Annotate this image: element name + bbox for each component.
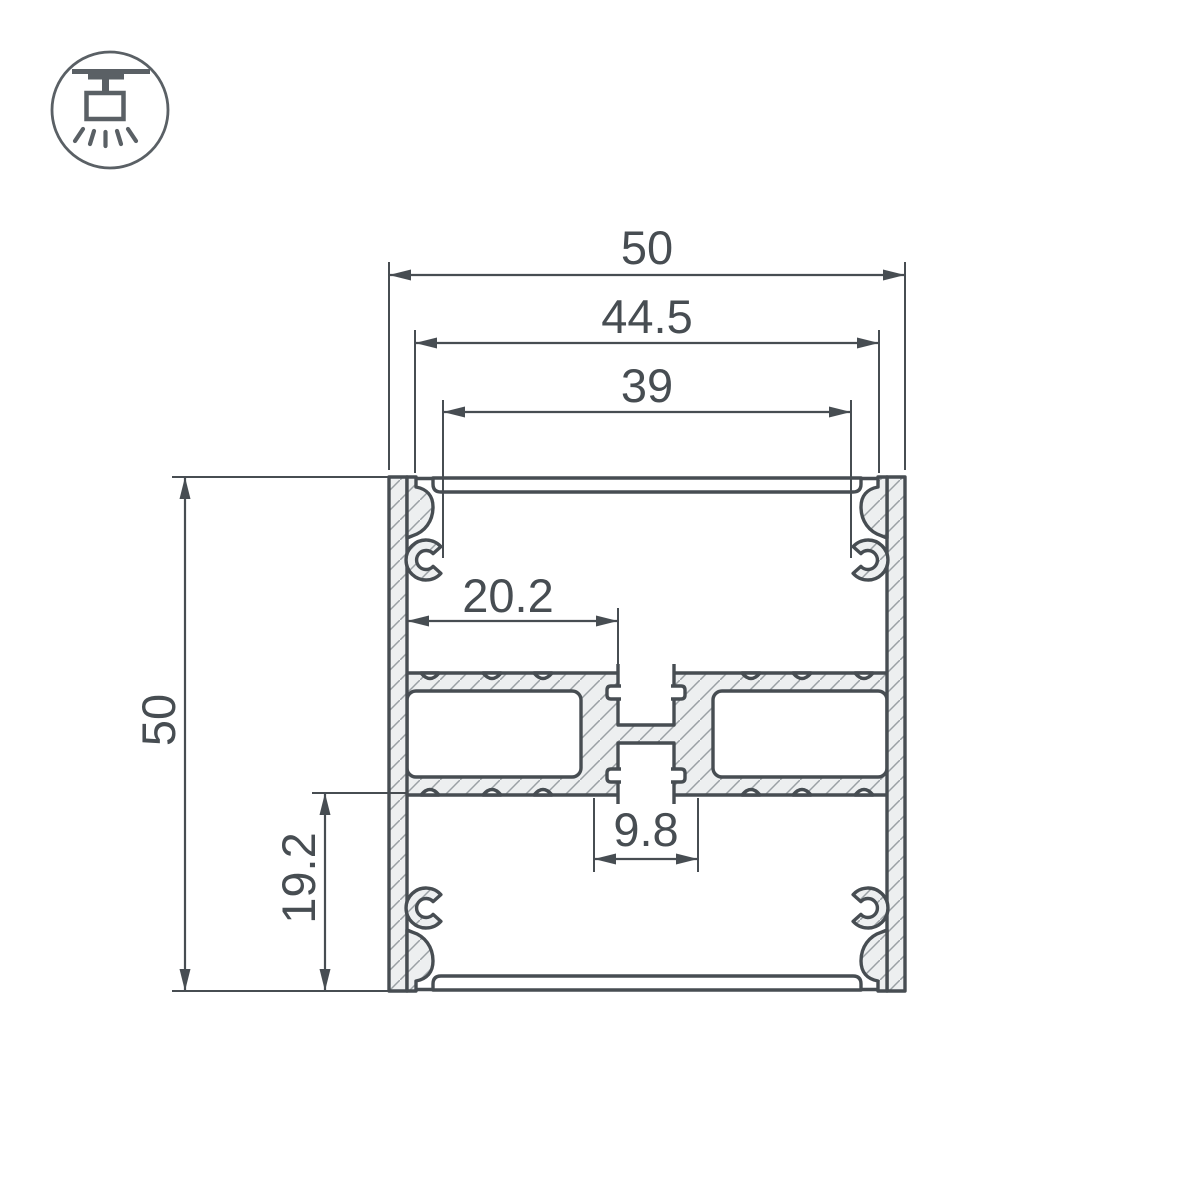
dimension-label-outer-height: 50 bbox=[132, 694, 185, 746]
center-channel-top-gap bbox=[618, 664, 674, 725]
left-wall bbox=[389, 477, 407, 991]
arrowhead bbox=[320, 793, 331, 815]
partition-groove bbox=[483, 673, 501, 679]
dimension-center-channel-width: 9.8 bbox=[594, 798, 698, 872]
right-cavity bbox=[713, 691, 887, 777]
surface-ceiling-light-icon bbox=[52, 52, 168, 168]
partition-groove bbox=[534, 673, 552, 679]
lip-hook-top-right bbox=[861, 477, 887, 538]
right-wall bbox=[887, 477, 905, 991]
arrowhead bbox=[676, 854, 698, 865]
screw-boss-top-left bbox=[406, 540, 441, 580]
lip-hook-bottom-right bbox=[861, 930, 887, 991]
icon-light-ray bbox=[117, 131, 121, 144]
rib-notch-bottom-right bbox=[671, 769, 685, 782]
partition-groove bbox=[421, 790, 439, 796]
drawing-canvas: 50 44.5 39 50 19.2 20.2 bbox=[0, 0, 1200, 1200]
rib-notch-bottom-left bbox=[607, 769, 621, 782]
rib-notch-top-left bbox=[607, 686, 621, 699]
arrowhead bbox=[596, 616, 618, 627]
partition-groove bbox=[855, 673, 873, 679]
arrowhead bbox=[180, 477, 191, 499]
dimension-outer-width: 50 bbox=[389, 221, 905, 470]
bottom-cover-plate bbox=[433, 976, 861, 990]
partition-groove bbox=[483, 790, 501, 796]
arrowhead bbox=[320, 969, 331, 991]
arrowhead bbox=[883, 270, 905, 281]
icon-lamp-box bbox=[87, 93, 124, 119]
dimension-label-bottom-chamber: 19.2 bbox=[272, 832, 325, 923]
partition-groove bbox=[793, 790, 811, 796]
screw-boss-top-right bbox=[853, 540, 888, 580]
rib-notch-top-right bbox=[671, 686, 685, 699]
dimension-inner-opening-width: 39 bbox=[443, 359, 851, 558]
dimension-wall-to-center-rib: 20.2 bbox=[407, 569, 618, 668]
arrowhead bbox=[180, 969, 191, 991]
lip-hook-top-left bbox=[407, 477, 433, 538]
dimension-label-opening-width: 39 bbox=[621, 359, 673, 412]
profile-cross-section bbox=[389, 477, 905, 991]
arrowhead bbox=[407, 616, 429, 627]
lip-hook-bottom-left bbox=[407, 930, 433, 991]
screw-boss-bottom-right bbox=[853, 888, 888, 928]
dimension-label-wall-to-rib: 20.2 bbox=[462, 569, 553, 622]
arrowhead bbox=[443, 407, 465, 418]
dimension-label-seat-width: 44.5 bbox=[601, 290, 692, 343]
icon-light-ray bbox=[90, 131, 94, 144]
partition-groove bbox=[793, 673, 811, 679]
arrowhead bbox=[829, 407, 851, 418]
arrowhead bbox=[389, 270, 411, 281]
partition-groove bbox=[742, 673, 760, 679]
left-cavity bbox=[407, 691, 581, 777]
center-channel-bottom-gap bbox=[618, 743, 674, 804]
partition-groove bbox=[421, 673, 439, 679]
arrowhead bbox=[415, 338, 437, 349]
icon-light-ray bbox=[128, 129, 136, 141]
partition-groove bbox=[534, 790, 552, 796]
dimension-outer-height: 50 bbox=[132, 477, 391, 991]
dimension-label-center-channel: 9.8 bbox=[613, 803, 678, 856]
icon-mount-plate bbox=[88, 74, 124, 80]
arrowhead bbox=[857, 338, 879, 349]
icon-light-ray bbox=[75, 129, 83, 141]
screw-boss-bottom-left bbox=[406, 888, 441, 928]
partition-groove bbox=[742, 790, 760, 796]
profile-drawing: 50 44.5 39 50 19.2 20.2 bbox=[0, 0, 1200, 1200]
top-cover-plate bbox=[433, 478, 861, 492]
dimension-label-outer-width: 50 bbox=[621, 221, 673, 274]
partition-groove bbox=[855, 790, 873, 796]
